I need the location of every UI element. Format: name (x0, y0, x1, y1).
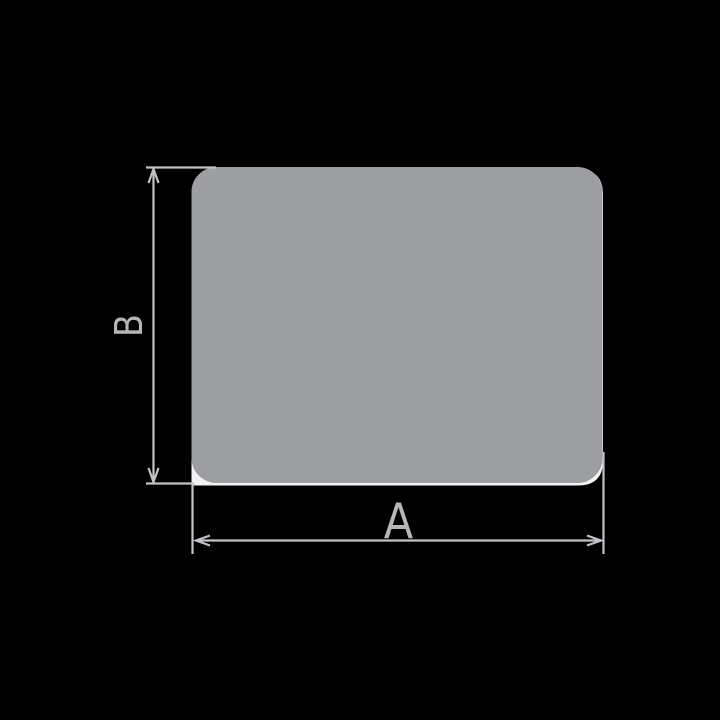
dim-label-a: A (384, 492, 414, 549)
profile-shape (192, 167, 603, 483)
drawing-canvas: A B (0, 0, 720, 720)
dimension-drawing: A B (0, 0, 720, 720)
dim-label-b: B (108, 314, 152, 337)
